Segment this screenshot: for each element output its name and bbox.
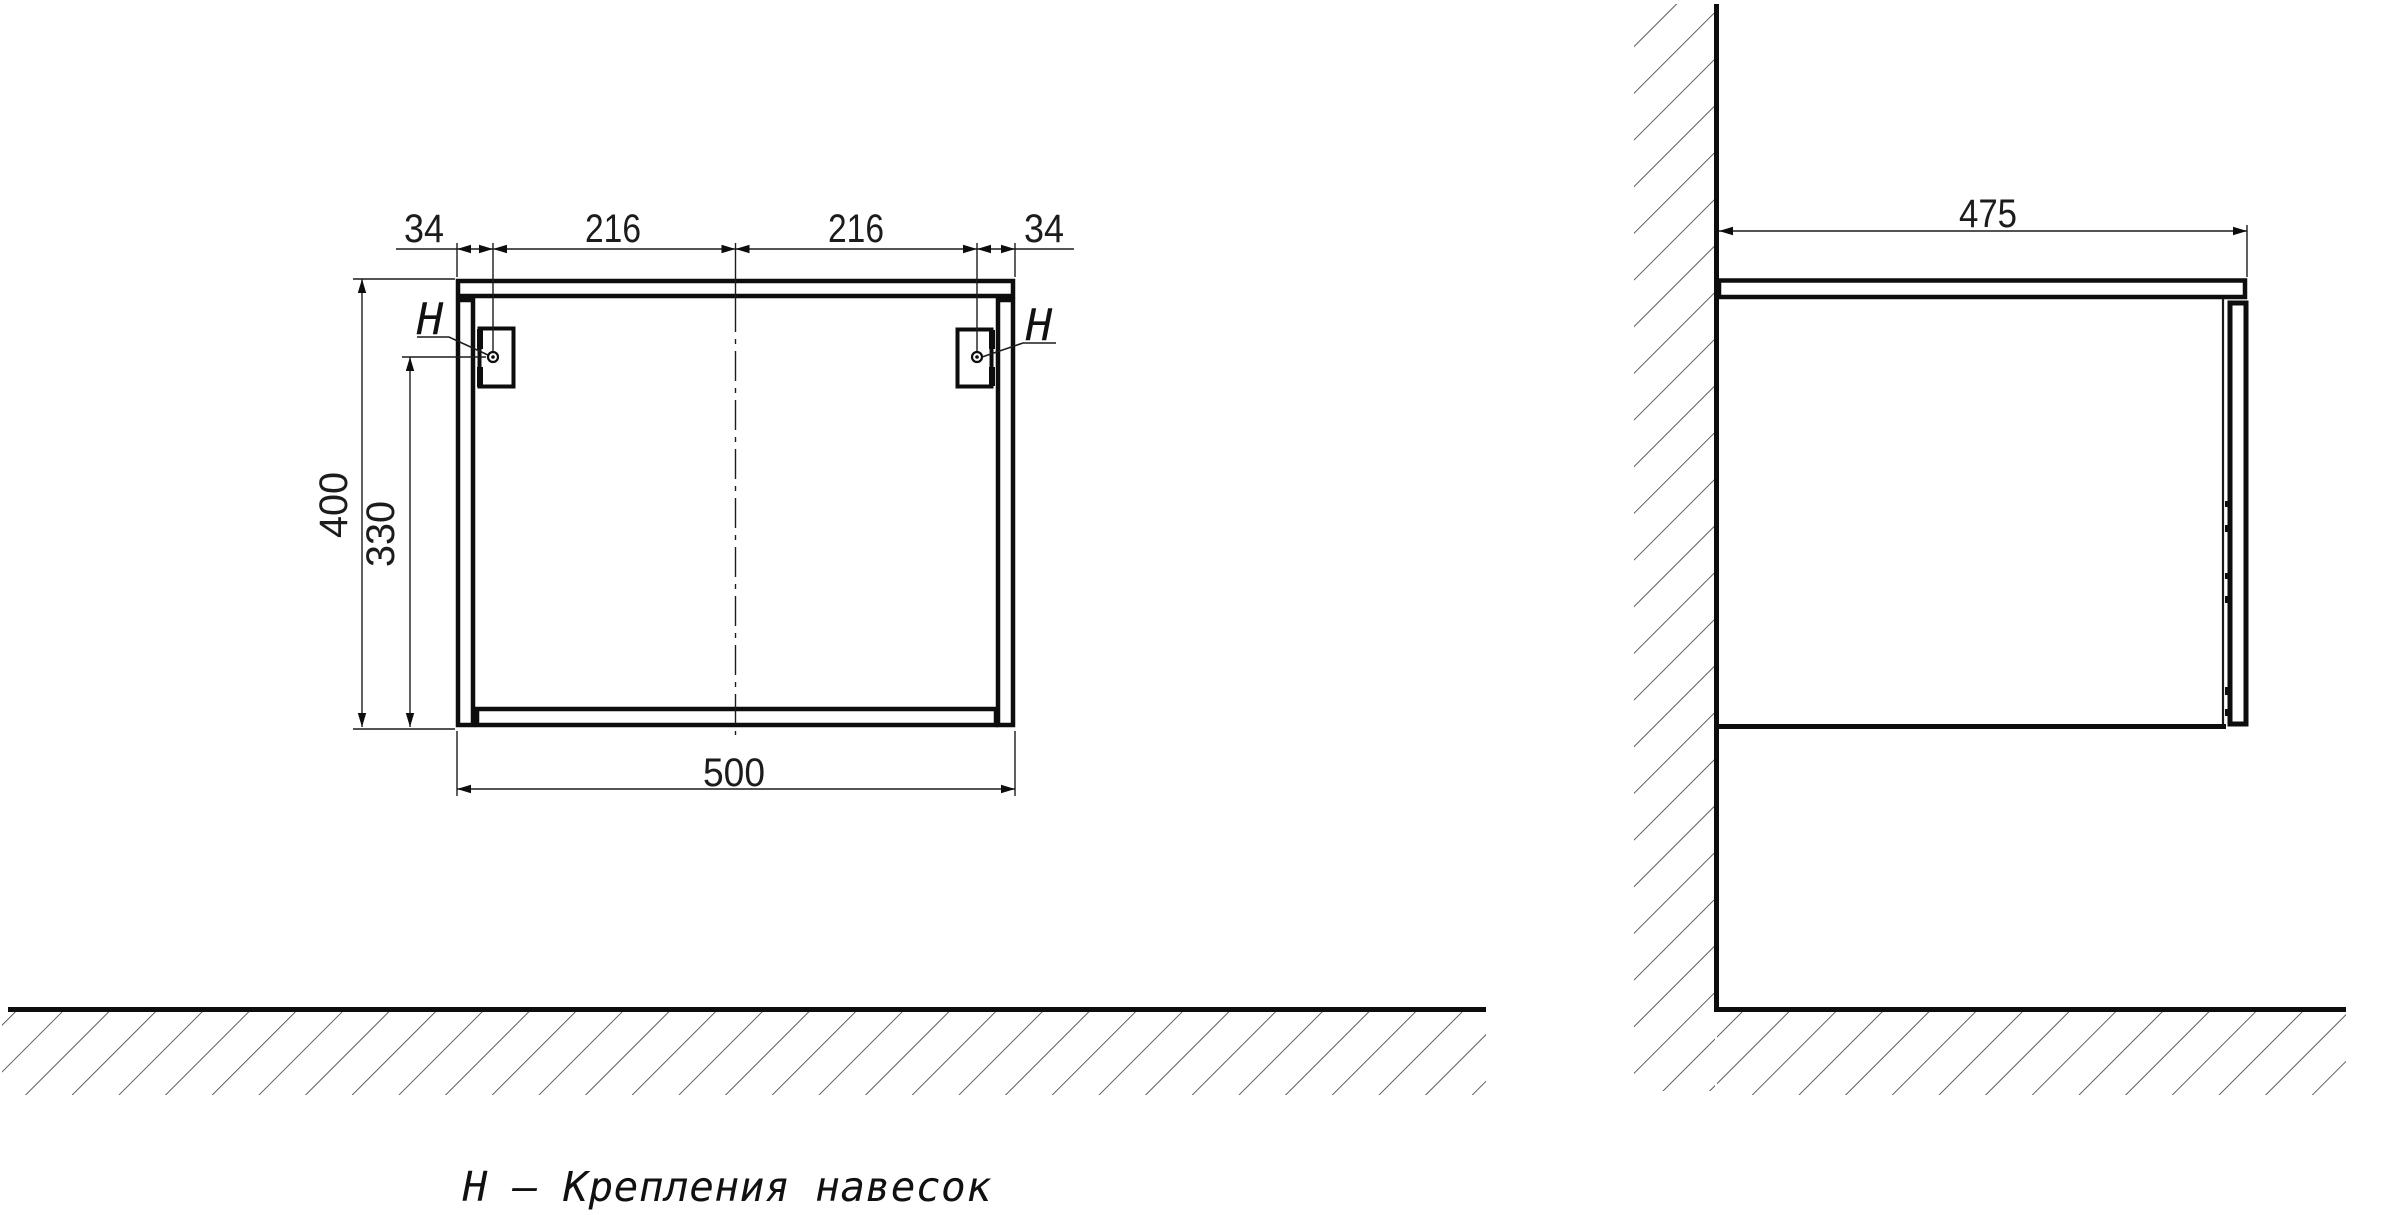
side-view [1716, 281, 2246, 727]
dim-500: 500 [703, 751, 765, 795]
wall-hatch [1634, 4, 1715, 1091]
front-right-side-panel [998, 300, 1013, 725]
dim-330: 330 [359, 501, 403, 567]
environment [2, 4, 2346, 1095]
front-bottom-panel [477, 709, 996, 725]
hanger-bracket-right [958, 330, 996, 387]
side-door-panel [2230, 303, 2246, 724]
front-left-side-panel [458, 300, 473, 725]
side-dimensions: 475 [1719, 192, 2247, 277]
dim-34-right: 34 [1024, 207, 1064, 251]
dim-400: 400 [312, 472, 356, 538]
dim-216-right: 216 [828, 207, 884, 251]
technical-drawing-page: 34 216 216 34 400 330 500 Н Н [0, 0, 2384, 1215]
side-top-panel [1719, 281, 2245, 298]
front-view [458, 243, 1013, 735]
hanger-label-left: Н [416, 294, 444, 345]
hanger-bracket-left [477, 329, 514, 388]
dim-34-left: 34 [404, 207, 444, 251]
floor-hatch-right [1717, 1012, 2346, 1095]
floor-hatch-left [2, 1012, 1486, 1095]
dim-475: 475 [1959, 192, 2017, 236]
hanger-label-right: Н [1025, 300, 1053, 351]
cabinet-drawing: 34 216 216 34 400 330 500 Н Н [0, 0, 2384, 1215]
caption: Н – Крепления навесок [462, 1163, 992, 1211]
dim-216-left: 216 [585, 207, 641, 251]
